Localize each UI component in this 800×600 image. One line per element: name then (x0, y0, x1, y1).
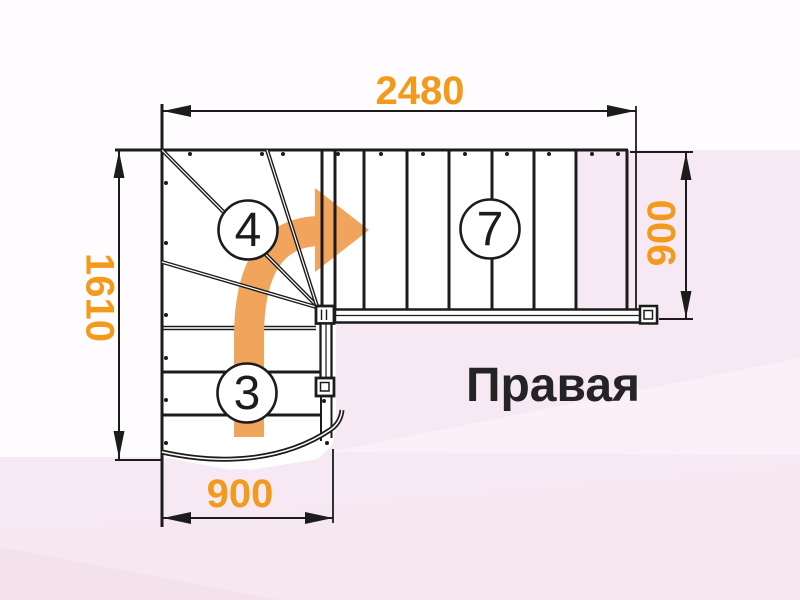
stringer-upper (335, 306, 657, 324)
badge-upper-count: 7 (477, 203, 504, 256)
stair-plan-page: 4 7 3 2480 1610 900 900 (0, 0, 800, 600)
badge-lower-count: 3 (234, 367, 261, 420)
dimension-top-value: 2480 (376, 69, 465, 113)
dimension-bottom-value: 900 (207, 472, 274, 516)
stair-type-label: Правая (466, 359, 640, 412)
dimension-right-value: 900 (640, 200, 684, 267)
dimension-left-value: 1610 (78, 253, 122, 342)
newel-post (316, 306, 334, 324)
badge-winder-count: 4 (235, 204, 262, 257)
stringer-end-block (640, 306, 657, 324)
baluster-block (316, 378, 334, 396)
stair-plan-drawing: 4 7 3 2480 1610 900 900 (0, 0, 800, 600)
